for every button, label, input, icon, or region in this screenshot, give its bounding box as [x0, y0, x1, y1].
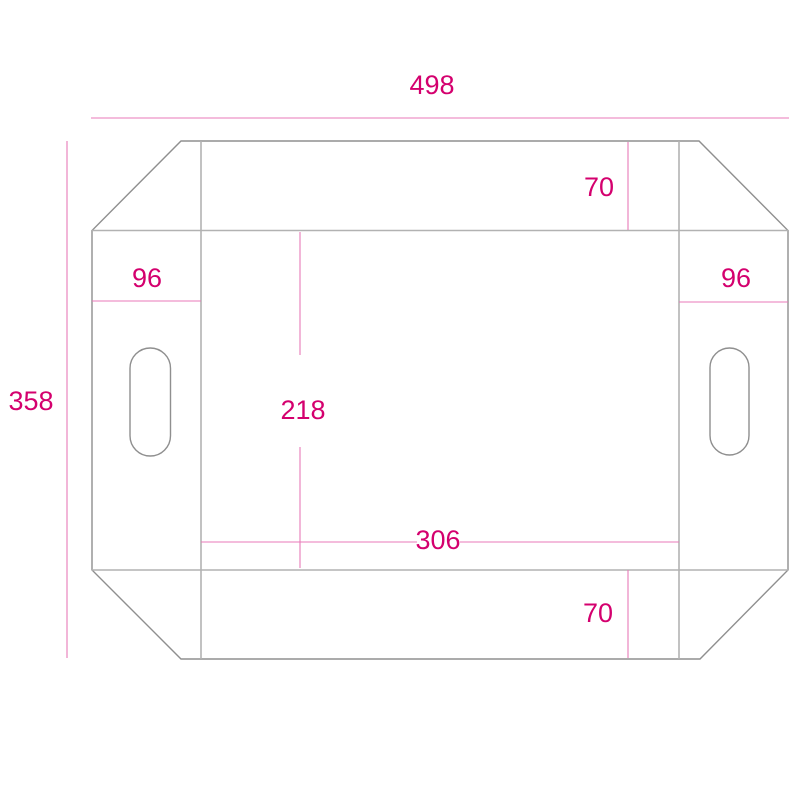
dieline-drawing-canvas: 498 358 70 96 96 218 306 70 — [0, 0, 800, 800]
dimension-label-total-width: 498 — [409, 70, 454, 100]
cut-outline — [92, 141, 788, 659]
dimension-label-top-flap: 70 — [584, 172, 614, 202]
handle-slot-right — [710, 348, 749, 455]
dieline-drawing: 498 358 70 96 96 218 306 70 — [0, 0, 800, 800]
dimension-label-left-panel: 96 — [132, 263, 162, 293]
dimension-label-right-panel: 96 — [721, 263, 751, 293]
dimension-label-total-height: 358 — [8, 386, 53, 416]
dimension-label-bottom-flap: 70 — [583, 598, 613, 628]
dimension-label-center-height: 218 — [280, 395, 325, 425]
handle-slot-left — [130, 348, 171, 456]
dimension-label-center-width: 306 — [415, 525, 460, 555]
